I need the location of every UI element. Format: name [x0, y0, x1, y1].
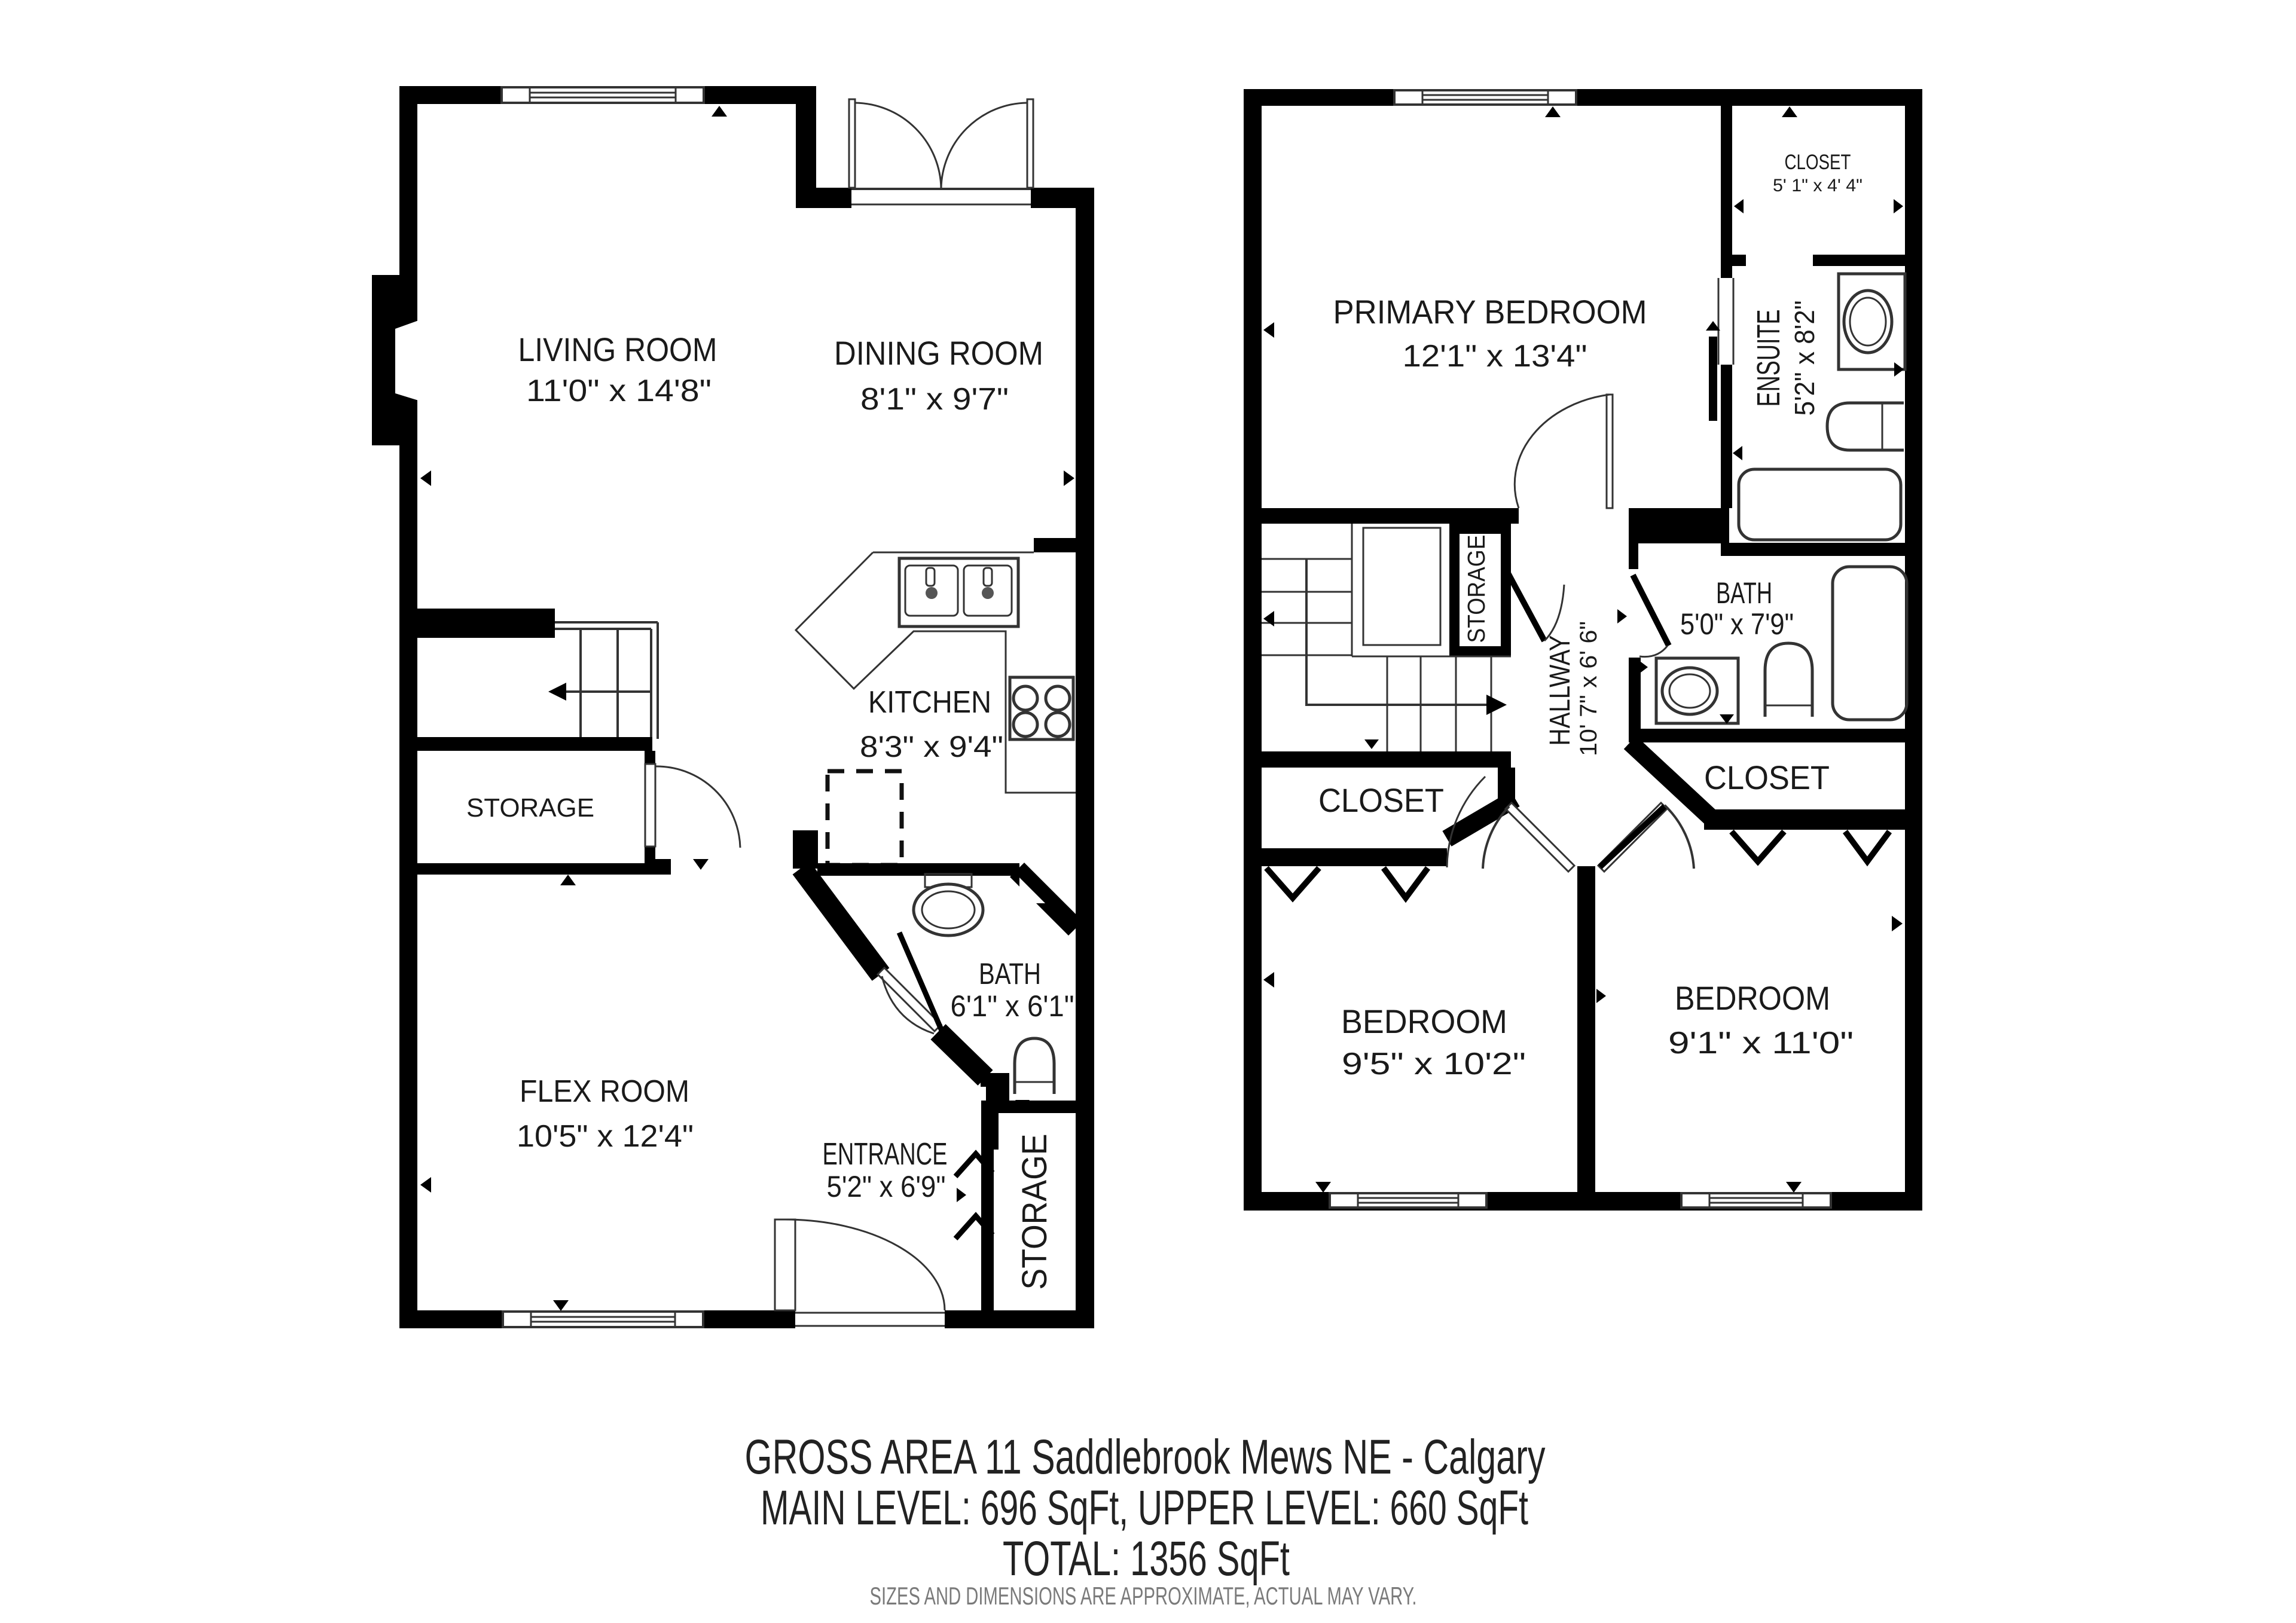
svg-text:GROSS AREA 11 Saddlebrook Mews: GROSS AREA 11 Saddlebrook Mews NE - Calg… [745, 1430, 1546, 1484]
svg-text:STORAGE: STORAGE [1015, 1134, 1054, 1290]
svg-text:5'0" x 7'9": 5'0" x 7'9" [1680, 607, 1794, 641]
svg-text:CLOSET: CLOSET [1785, 151, 1851, 174]
svg-text:ENTRANCE: ENTRANCE [823, 1137, 948, 1172]
svg-text:9'5" x 10'2": 9'5" x 10'2" [1342, 1047, 1526, 1081]
svg-text:BEDROOM: BEDROOM [1341, 1002, 1507, 1040]
svg-text:STORAGE: STORAGE [466, 793, 594, 823]
svg-text:BATH: BATH [1716, 576, 1772, 610]
svg-text:TOTAL: 1356 SqFt: TOTAL: 1356 SqFt [1003, 1532, 1290, 1586]
svg-text:DINING ROOM: DINING ROOM [834, 334, 1043, 372]
svg-text:5' 1" x 4' 4": 5' 1" x 4' 4" [1773, 176, 1863, 195]
svg-text:CLOSET: CLOSET [1318, 781, 1444, 819]
svg-text:BEDROOM: BEDROOM [1675, 979, 1830, 1017]
svg-text:SIZES AND DIMENSIONS ARE APPRO: SIZES AND DIMENSIONS ARE APPROXIMATE, AC… [870, 1582, 1417, 1610]
svg-text:ENSUITE: ENSUITE [1751, 310, 1787, 407]
svg-text:9'1" x 11'0": 9'1" x 11'0" [1668, 1026, 1854, 1060]
svg-text:8'3" x 9'4": 8'3" x 9'4" [860, 730, 1003, 763]
svg-text:6'1" x 6'1": 6'1" x 6'1" [951, 989, 1074, 1023]
svg-text:LIVING ROOM: LIVING ROOM [518, 331, 717, 368]
svg-text:8'1" x 9'7": 8'1" x 9'7" [860, 382, 1009, 417]
svg-text:MAIN LEVEL: 696 SqFt, UPPER LE: MAIN LEVEL: 696 SqFt, UPPER LEVEL: 660 S… [761, 1481, 1528, 1535]
svg-text:5'2" x 8'2": 5'2" x 8'2" [1789, 301, 1820, 416]
svg-text:5'2" x 6'9": 5'2" x 6'9" [827, 1170, 946, 1203]
svg-text:10'5" x 12'4": 10'5" x 12'4" [517, 1119, 694, 1154]
svg-text:KITCHEN: KITCHEN [868, 685, 991, 720]
svg-text:BATH: BATH [979, 957, 1041, 991]
svg-text:PRIMARY BEDROOM: PRIMARY BEDROOM [1333, 293, 1647, 331]
svg-text:CLOSET: CLOSET [1704, 759, 1830, 796]
svg-text:12'1" x 13'4": 12'1" x 13'4" [1403, 339, 1587, 374]
svg-text:HALLWAY: HALLWAY [1544, 635, 1576, 746]
svg-text:STORAGE: STORAGE [1463, 535, 1490, 643]
svg-text:11'0" x 14'8": 11'0" x 14'8" [526, 374, 712, 408]
svg-text:10' 7" x 6' 6": 10' 7" x 6' 6" [1576, 621, 1602, 756]
svg-text:FLEX ROOM: FLEX ROOM [520, 1074, 689, 1109]
